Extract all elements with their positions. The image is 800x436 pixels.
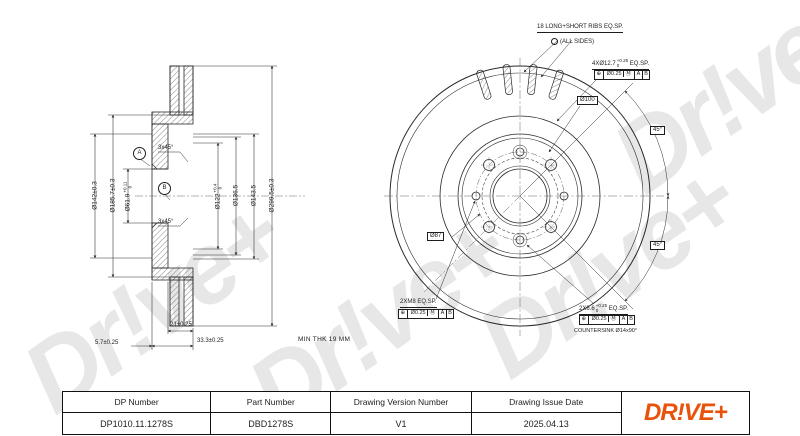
dim-total-width: 33.3±0.25 <box>197 338 224 345</box>
issue-date-value: 2025.04.13 <box>472 413 621 434</box>
dp-number-header: DP Number <box>63 392 210 413</box>
m8-callout: 2XM8 EQ.SP. <box>400 299 437 308</box>
datum-b-badge: B <box>158 182 171 195</box>
hub-diameter-label: Ø87 <box>427 232 444 241</box>
dim-band-id: Ø185.7±0.3 <box>110 156 117 236</box>
ribs-note: 18 LONG+SHORT RIBS EQ.SP. <box>537 24 623 33</box>
position-symbol: ⊕ <box>595 71 604 79</box>
position-symbol: ⊕ <box>399 310 408 318</box>
angle-label-bottom: 45° <box>650 241 665 250</box>
dim-flange-thickness: 5.7±0.25 <box>95 340 118 347</box>
gdt-frame-countersink: ⊕ Ø0.25Ⓜ A B <box>579 315 635 325</box>
position-symbol: ⊕ <box>580 316 589 324</box>
title-block: DP Number DP1010.11.1278S Part Number DB… <box>62 391 750 435</box>
min-thickness-note: MIN THK 19 MM <box>298 336 350 343</box>
gdt-frame-m8: ⊕ Ø0.25Ⓜ A B <box>398 309 454 319</box>
dim-hat-depth: 21±0.25 <box>160 322 202 329</box>
title-block-col-issue-date: Drawing Issue Date 2025.04.13 <box>472 392 622 434</box>
front-view <box>384 40 668 336</box>
dim-center-bore: Ø61.9+0.110 <box>124 157 133 237</box>
dp-number-value: DP1010.11.1278S <box>63 413 210 434</box>
dim-flange-od: Ø142±0.3 <box>92 156 99 236</box>
bolt-circle-label: Ø100 <box>577 96 598 105</box>
ribs-note-all-sides: (ALL SIDES) <box>551 38 594 46</box>
dim-hub-od: Ø136.5 <box>233 156 240 236</box>
title-block-col-part-number: Part Number DBD1278S <box>211 392 331 434</box>
part-number-header: Part Number <box>211 392 330 413</box>
chamfer-label-bottom: 3x45° <box>158 219 173 226</box>
version-value: V1 <box>331 413 470 434</box>
dim-disc-od: Ø299.5±0.3 <box>269 156 276 236</box>
drawing-canvas: Dr!ve+ Dr!ve+ Dr!ve+ Dr!ve+ <box>0 0 800 436</box>
angle-label-top: 45° <box>650 126 665 135</box>
balloon-circle-icon <box>551 38 558 45</box>
issue-date-header: Drawing Issue Date <box>472 392 621 413</box>
countersink-note: COUNTERSINK Ø14x90° <box>574 328 637 334</box>
title-block-col-version: Drawing Version Number V1 <box>331 392 471 434</box>
part-number-value: DBD1278S <box>211 413 330 434</box>
datum-a-badge: A <box>133 147 146 160</box>
countersink-callout: 2X6.6+0.250 EQ.SP. <box>579 304 628 315</box>
drawing-linework <box>0 0 800 390</box>
chamfer-label-top: 3x45° <box>158 145 173 152</box>
version-header: Drawing Version Number <box>331 392 470 413</box>
dim-hat-id: Ø122+0.40 <box>214 157 223 237</box>
side-view-dimension-lines <box>90 66 277 350</box>
gdt-frame-bolt-holes: ⊕ Ø0.25Ⓜ A B <box>594 70 650 80</box>
bolt-holes-callout: 4XØ12.7+0.250 EQ.SP. <box>592 59 649 70</box>
drive-plus-logo: DR!VE+ <box>644 399 727 427</box>
title-block-col-dp-number: DP Number DP1010.11.1278S <box>63 392 211 434</box>
logo-cell: DR!VE+ <box>622 392 749 434</box>
dim-hat-od: Ø143.5 <box>251 156 258 236</box>
